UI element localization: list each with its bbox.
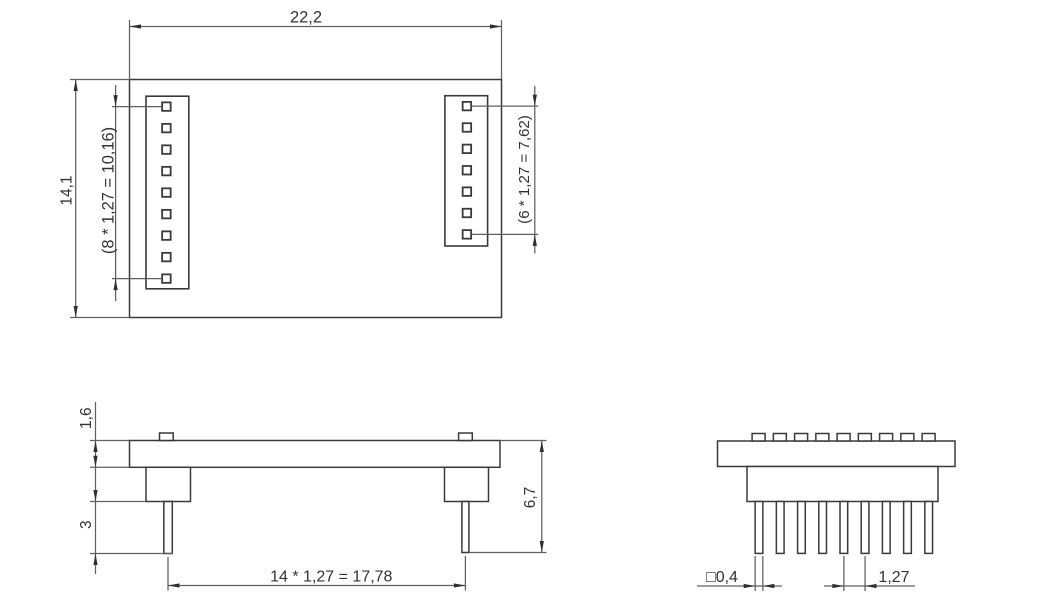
svg-text:1,27: 1,27 [878, 569, 909, 586]
svg-text:14,1: 14,1 [59, 176, 76, 206]
svg-text:(8 * 1,27 = 10,16): (8 * 1,27 = 10,16) [99, 127, 117, 254]
svg-text:14 * 1,27 = 17,78: 14 * 1,27 = 17,78 [270, 569, 392, 586]
svg-text:6,7: 6,7 [522, 487, 539, 509]
svg-text:3: 3 [78, 520, 95, 529]
svg-text:1,6: 1,6 [78, 407, 95, 429]
svg-text:22,2: 22,2 [290, 9, 322, 27]
svg-text:(6 * 1,27 = 7,62): (6 * 1,27 = 7,62) [516, 115, 533, 224]
svg-text:□0,4: □0,4 [706, 569, 738, 586]
